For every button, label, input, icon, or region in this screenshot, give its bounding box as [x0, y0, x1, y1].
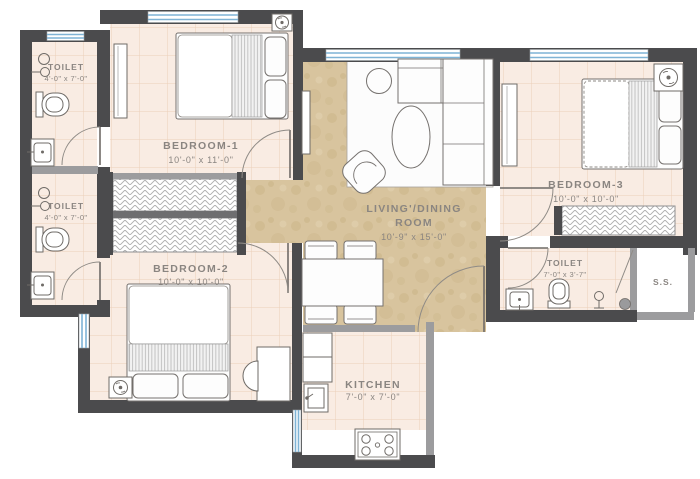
floor-plan-drawing: TOILET 4'-0" x 7'-0" TOILET 4'-0" x 7'-0…: [0, 0, 700, 479]
bedroom-3-window: [530, 50, 648, 61]
bedroom-1-wardrobe: [113, 179, 237, 211]
bedroom-2-label: BEDROOM-2: [153, 263, 229, 275]
dining-chair: [305, 305, 337, 324]
toilet-3-label: TOILET: [547, 258, 583, 268]
toilet-2-label: TOILET: [48, 201, 84, 211]
dining-chair: [344, 241, 376, 260]
pillow: [183, 374, 228, 398]
kitchen-label: KITCHEN: [345, 379, 401, 391]
dining-table: [302, 259, 383, 306]
bed-runner: [232, 35, 262, 117]
ac-unit-icon: [109, 377, 132, 398]
side-table-icon: [367, 69, 392, 94]
bed-runner: [629, 81, 657, 167]
living-label-line1: LIVING'/DINING: [366, 203, 461, 215]
toilet-2-dims: 4'-0" x 7'-0": [45, 213, 88, 222]
toilet-1-label: TOILET: [48, 62, 84, 72]
floor-drain-icon: [620, 299, 631, 310]
bedroom-1-dims: 10'-0" x 11'-0": [168, 155, 233, 165]
wc-icon: [36, 227, 69, 252]
washbasin-icon: [506, 289, 533, 310]
washbasin-icon: [27, 139, 54, 166]
dresser: [502, 84, 517, 166]
bedroom-3-label: BEDROOM-3: [548, 179, 624, 191]
ac-unit-icon: [654, 64, 683, 91]
kitchen-dims: 7'-0" x 7'-0": [346, 392, 400, 402]
ac-unit-icon: [272, 14, 292, 31]
bedroom-3-wardrobe: [562, 206, 675, 235]
dining-chair: [344, 305, 376, 324]
living-label-line2: ROOM: [395, 217, 433, 229]
bedroom-2-wardrobe: [113, 218, 237, 252]
washbasin-icon: [27, 272, 54, 299]
service-area-label: S.S.: [653, 277, 673, 287]
bed-duvet: [584, 81, 629, 167]
bedroom-2-window: [79, 314, 89, 348]
kitchen-window: [293, 410, 301, 452]
toilet-1-window: [47, 32, 84, 41]
kitchen-counter: [303, 357, 332, 382]
pillow: [133, 374, 178, 398]
bedroom-2-dims: 10'-0" x 10'-0": [158, 277, 224, 287]
stove-icon: [355, 429, 400, 460]
desk: [257, 347, 290, 401]
dining-chair: [305, 241, 337, 260]
kitchen-sink-icon: [304, 384, 328, 412]
bedroom-3-dims: 10'-0" x 10'-0": [553, 194, 619, 204]
pillow: [265, 80, 286, 118]
dresser: [114, 44, 127, 118]
coffee-table-icon: [392, 106, 430, 168]
kitchen-counter: [303, 333, 332, 357]
passage-floor: [243, 180, 303, 243]
toilet-1-dims: 4'-0" x 7'-0": [45, 74, 88, 83]
pillow: [265, 37, 286, 76]
living-dims: 10'-9" x 15'-0": [381, 232, 447, 242]
toilet-3-dims: 7'-0" x 3'-7": [544, 270, 587, 279]
tv-console: [302, 91, 310, 154]
bed-duvet: [129, 286, 228, 344]
bedroom-1-window: [148, 12, 238, 23]
wc-icon: [548, 279, 570, 308]
bedroom-1-label: BEDROOM-1: [163, 140, 239, 152]
bed-duvet: [178, 35, 232, 117]
floor-plan-canvas: TOILET 4'-0" x 7'-0" TOILET 4'-0" x 7'-0…: [0, 0, 700, 479]
pillow: [659, 126, 681, 164]
bed-runner: [129, 344, 228, 371]
wc-icon: [36, 92, 69, 117]
